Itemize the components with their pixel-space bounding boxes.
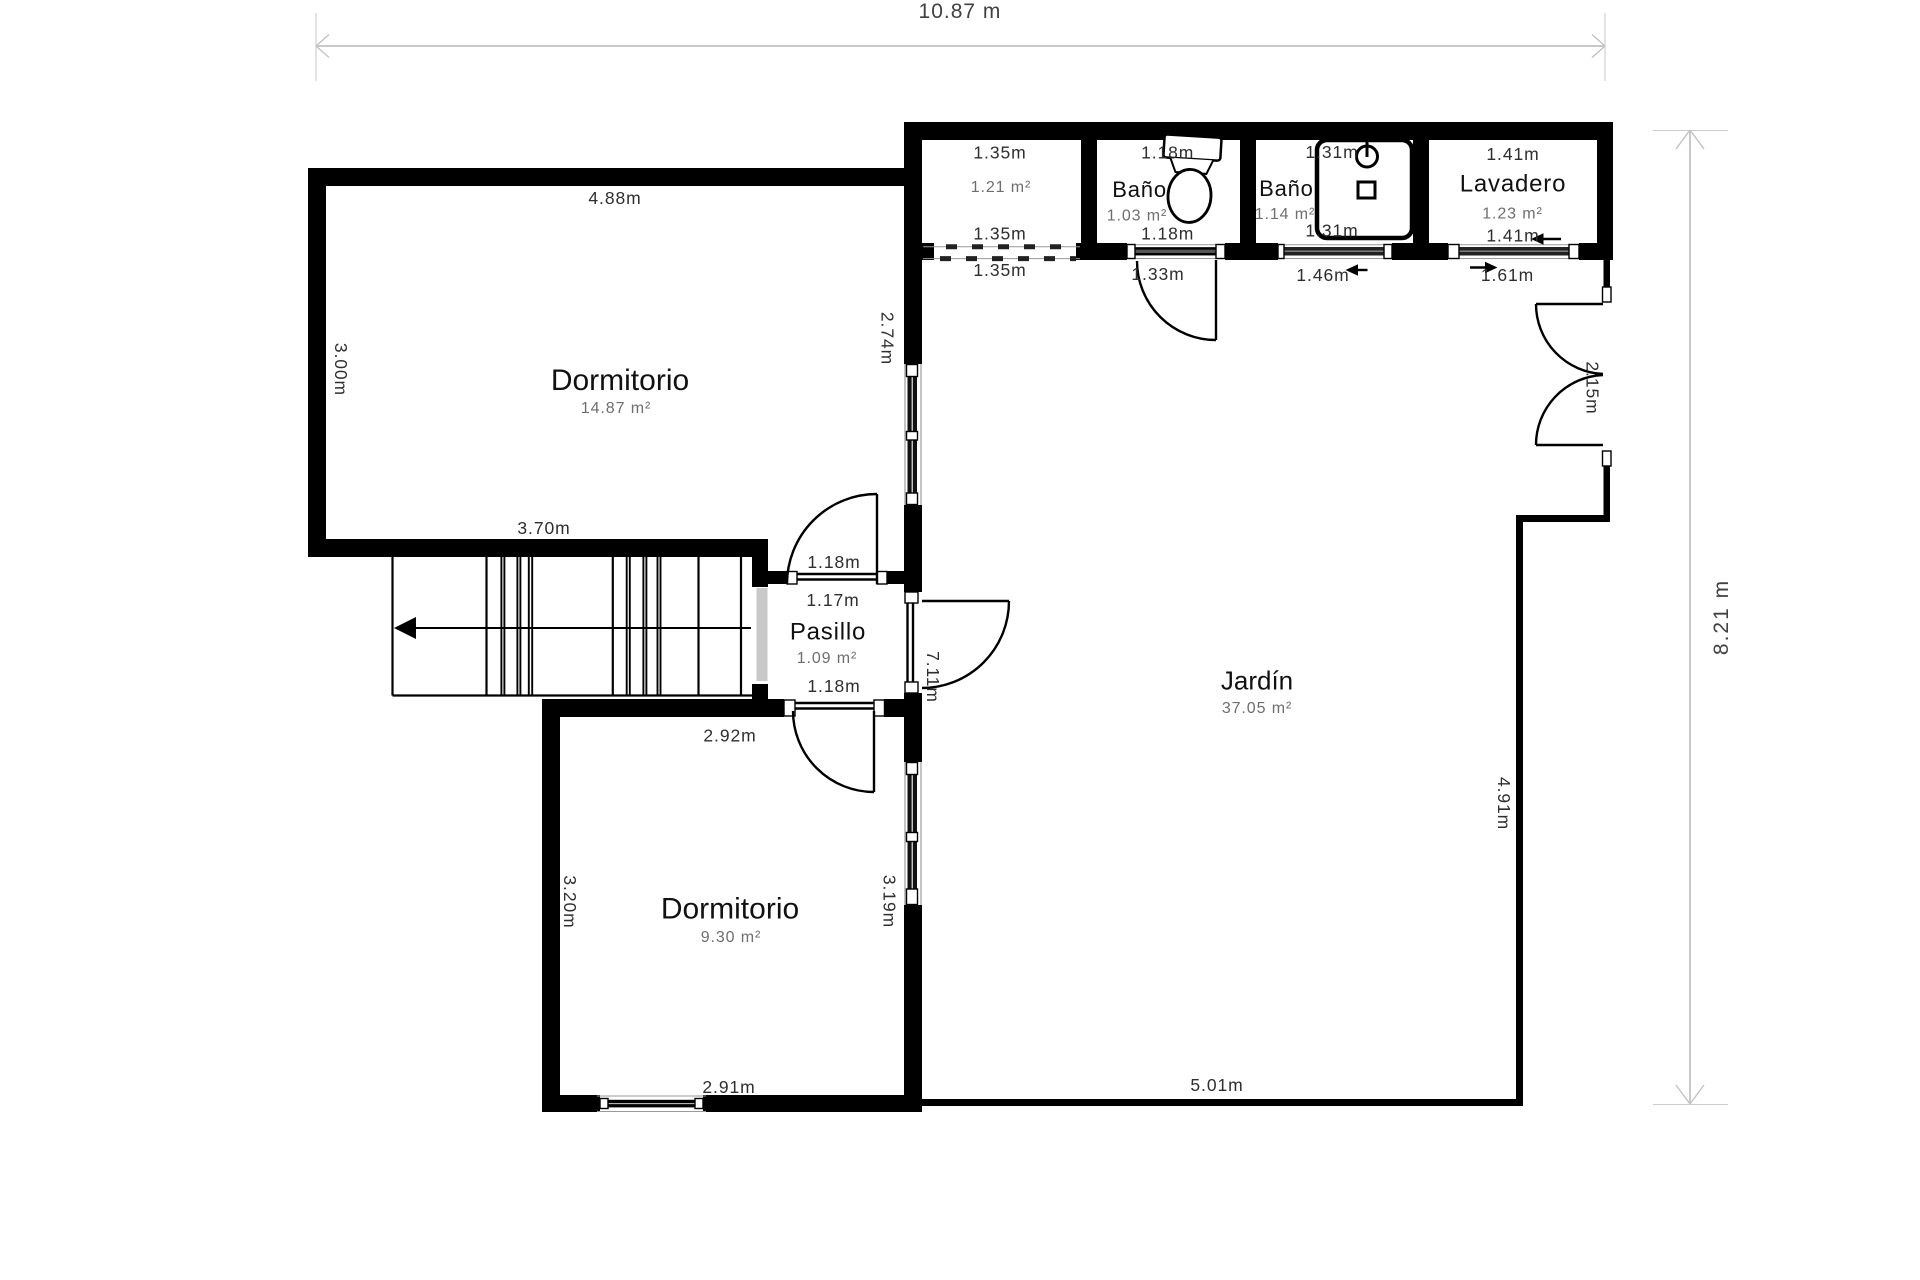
svg-text:Lavadero: Lavadero <box>1460 171 1566 198</box>
svg-text:1.18m: 1.18m <box>1141 142 1194 162</box>
svg-text:1.35m: 1.35m <box>973 143 1026 163</box>
svg-text:Jardín: Jardín <box>1221 666 1293 696</box>
svg-text:8.21 m: 8.21 m <box>1710 579 1733 655</box>
svg-text:5.01m: 5.01m <box>1190 1075 1243 1095</box>
svg-text:9.30 m²: 9.30 m² <box>701 929 762 946</box>
svg-text:1.31m: 1.31m <box>1305 142 1358 162</box>
svg-text:1.17m: 1.17m <box>806 590 859 610</box>
svg-text:14.87 m²: 14.87 m² <box>581 400 651 417</box>
svg-text:1.61m: 1.61m <box>1481 265 1534 285</box>
svg-text:7.11m: 7.11m <box>923 651 943 703</box>
svg-text:2.92m: 2.92m <box>703 726 756 746</box>
svg-text:1.18m: 1.18m <box>807 552 860 572</box>
svg-text:3.00m: 3.00m <box>331 343 351 396</box>
svg-text:37.05 m²: 37.05 m² <box>1222 700 1292 717</box>
svg-text:3.19m: 3.19m <box>880 875 900 928</box>
svg-text:Baño: Baño <box>1112 177 1167 202</box>
svg-text:1.41m: 1.41m <box>1486 225 1539 245</box>
svg-text:10.87 m: 10.87 m <box>919 0 1002 23</box>
svg-text:2.15m: 2.15m <box>1583 361 1603 414</box>
svg-text:1.35m: 1.35m <box>973 223 1026 243</box>
svg-text:1.33m: 1.33m <box>1131 264 1184 284</box>
svg-text:1.18m: 1.18m <box>1141 224 1194 244</box>
svg-text:1.18m: 1.18m <box>807 676 860 696</box>
svg-text:Dormitorio: Dormitorio <box>551 364 689 397</box>
svg-text:Pasillo: Pasillo <box>790 619 866 646</box>
svg-text:2.91m: 2.91m <box>702 1077 755 1097</box>
svg-text:1.31m: 1.31m <box>1305 221 1358 241</box>
svg-text:4.88m: 4.88m <box>588 188 641 208</box>
svg-text:1.23 m²: 1.23 m² <box>1482 206 1543 223</box>
svg-text:Dormitorio: Dormitorio <box>661 893 799 926</box>
svg-text:3.70m: 3.70m <box>517 518 570 538</box>
svg-text:1.03 m²: 1.03 m² <box>1107 208 1168 225</box>
svg-text:1.09 m²: 1.09 m² <box>797 650 858 667</box>
svg-text:1.35m: 1.35m <box>973 260 1026 280</box>
svg-text:1.46m: 1.46m <box>1296 265 1349 285</box>
svg-text:2.74m: 2.74m <box>878 312 898 365</box>
svg-text:1.41m: 1.41m <box>1486 144 1539 164</box>
svg-text:Baño: Baño <box>1259 176 1314 201</box>
svg-text:3.20m: 3.20m <box>560 875 580 928</box>
svg-text:4.91m: 4.91m <box>1494 777 1514 830</box>
svg-text:1.21 m²: 1.21 m² <box>971 179 1032 196</box>
